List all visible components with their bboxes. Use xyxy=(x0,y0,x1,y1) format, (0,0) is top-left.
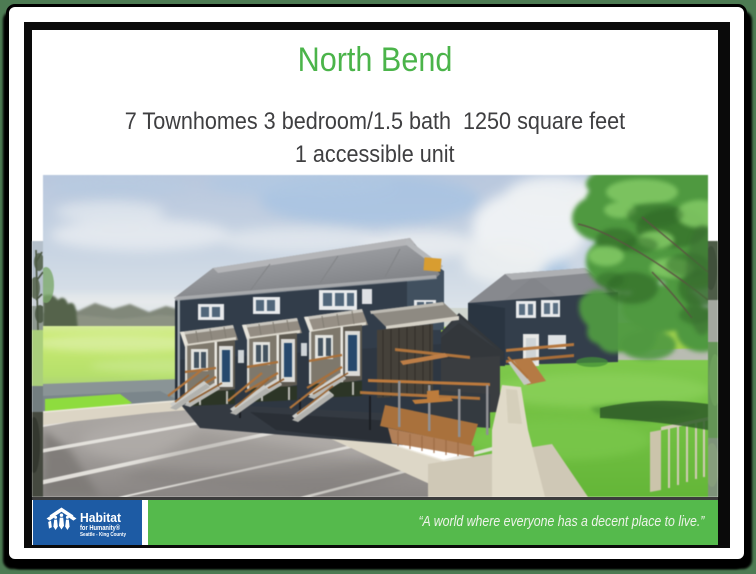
svg-text:Habitat: Habitat xyxy=(80,510,122,525)
svg-text:Seattle - King County: Seattle - King County xyxy=(80,532,126,538)
svg-text:for Humanity®: for Humanity® xyxy=(80,524,121,532)
